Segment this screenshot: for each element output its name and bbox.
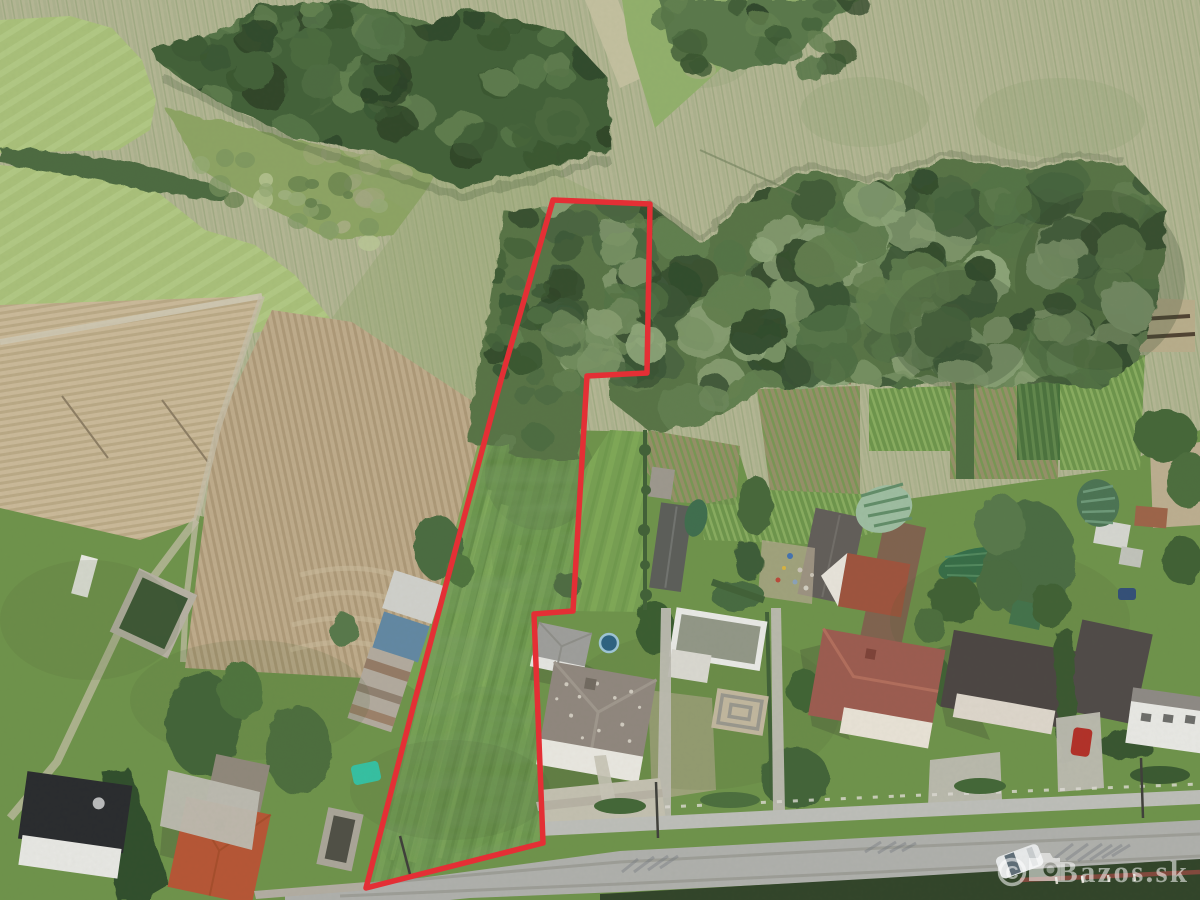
svg-text:C: C — [1006, 863, 1019, 883]
